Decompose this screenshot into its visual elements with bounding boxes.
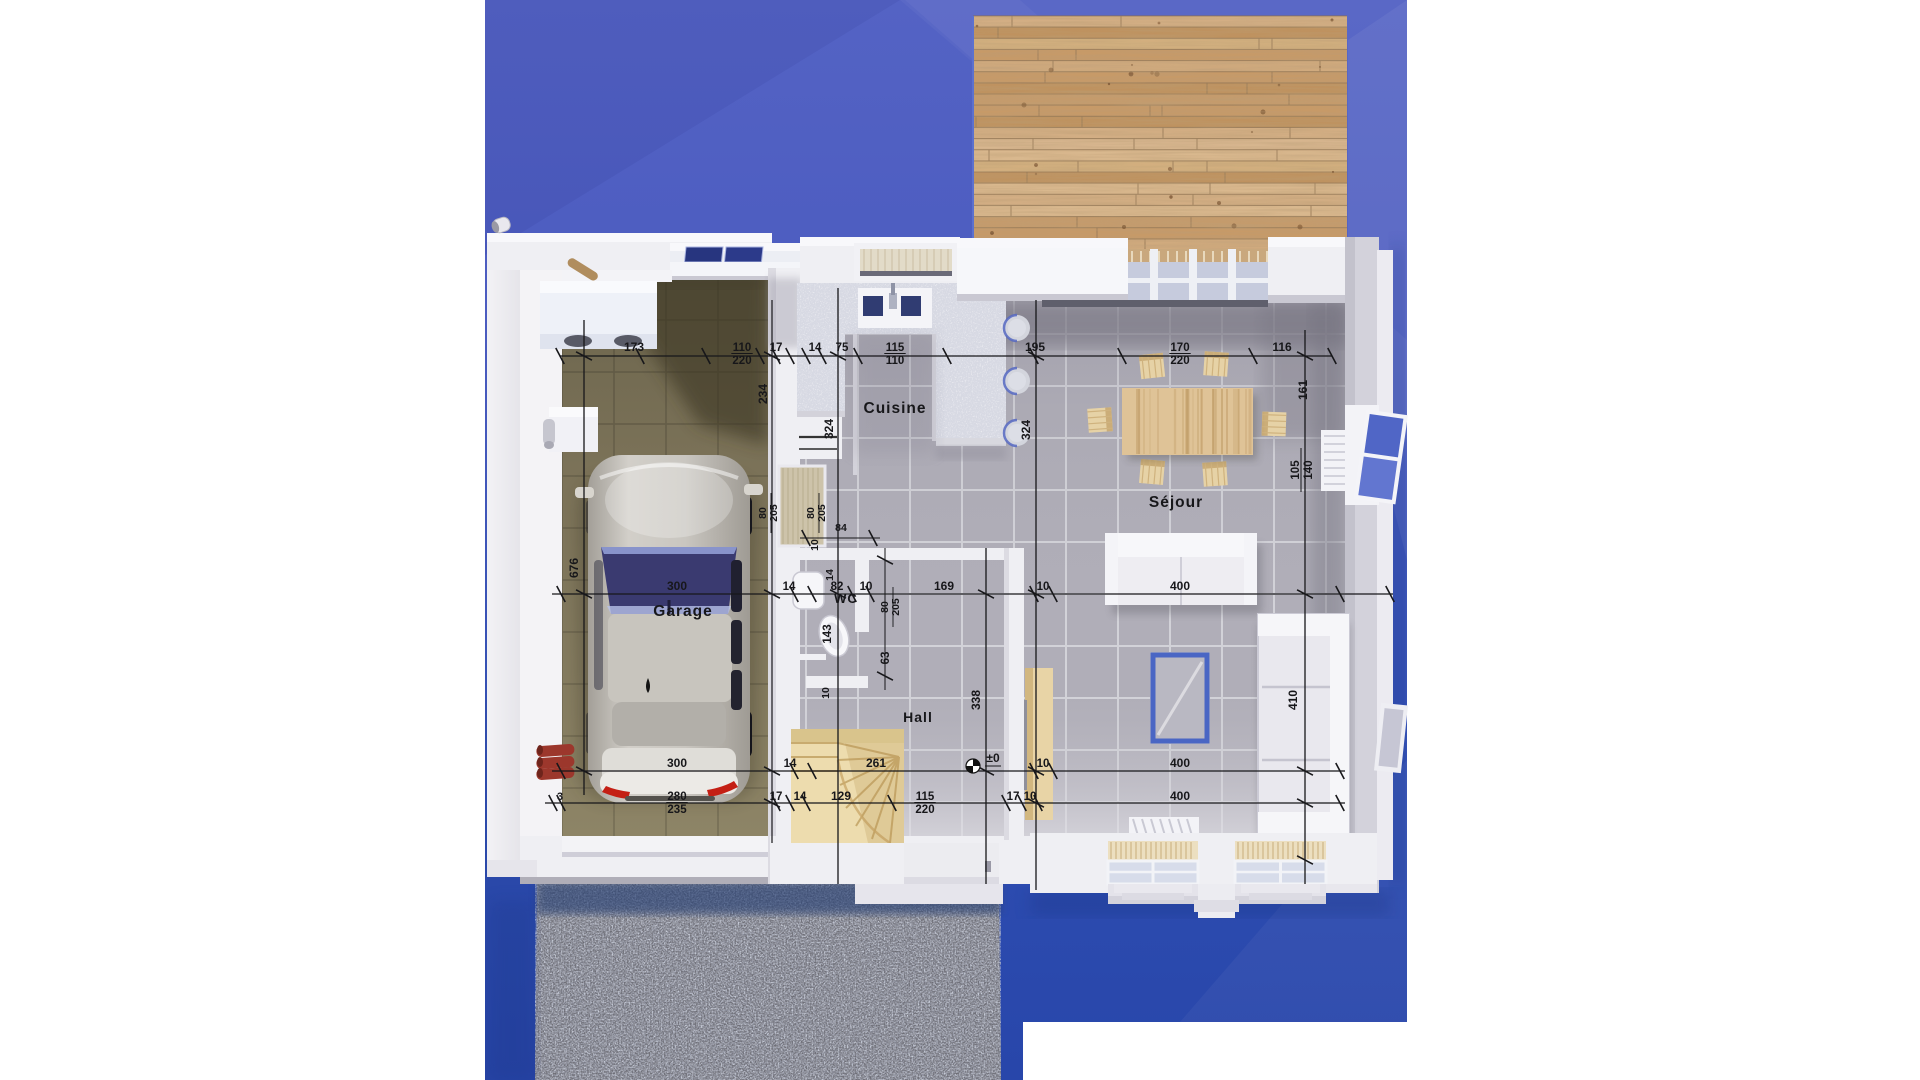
svg-text:170: 170 (1170, 342, 1189, 354)
svg-text:235: 235 (667, 804, 687, 816)
svg-text:140: 140 (1303, 460, 1315, 479)
svg-text:400: 400 (1170, 579, 1190, 593)
svg-text:161: 161 (1296, 380, 1310, 400)
svg-text:3: 3 (557, 791, 563, 803)
svg-text:261: 261 (866, 756, 886, 770)
svg-text:220: 220 (732, 355, 751, 367)
svg-text:400: 400 (1170, 789, 1190, 803)
svg-text:Séjour: Séjour (1149, 494, 1203, 511)
svg-text:220: 220 (1170, 355, 1189, 367)
svg-text:220: 220 (915, 804, 934, 816)
svg-text:63: 63 (880, 652, 892, 665)
svg-text:10: 10 (860, 581, 873, 593)
svg-text:14: 14 (783, 581, 796, 593)
svg-text:205: 205 (768, 504, 780, 522)
svg-text:169: 169 (934, 579, 954, 593)
svg-text:400: 400 (1170, 756, 1190, 770)
svg-text:10: 10 (820, 687, 832, 699)
svg-text:14: 14 (809, 342, 822, 354)
svg-text:324: 324 (1019, 420, 1033, 440)
svg-text:280: 280 (667, 791, 686, 803)
svg-text:676: 676 (567, 558, 581, 578)
svg-text:WC: WC (834, 591, 858, 606)
svg-text:84: 84 (835, 522, 847, 534)
svg-text:205: 205 (816, 504, 828, 522)
svg-text:205: 205 (890, 598, 902, 616)
svg-text:115: 115 (886, 342, 905, 354)
svg-text:129: 129 (831, 789, 851, 803)
svg-text:105: 105 (1290, 460, 1302, 480)
svg-text:300: 300 (667, 579, 687, 593)
svg-text:Garage: Garage (653, 603, 712, 620)
svg-text:110: 110 (886, 355, 905, 367)
svg-text:±0: ±0 (986, 751, 1000, 765)
svg-text:173: 173 (624, 340, 644, 354)
svg-text:14: 14 (794, 791, 807, 803)
svg-text:10: 10 (1024, 791, 1037, 803)
svg-text:10: 10 (809, 539, 821, 551)
svg-text:116: 116 (1272, 340, 1292, 354)
svg-text:14: 14 (784, 758, 797, 770)
svg-text:14: 14 (824, 569, 836, 581)
svg-text:410: 410 (1286, 690, 1300, 710)
svg-text:143: 143 (822, 624, 834, 643)
svg-text:338: 338 (969, 690, 983, 710)
svg-text:Hall: Hall (903, 709, 933, 725)
svg-text:17: 17 (1007, 791, 1020, 803)
svg-text:234: 234 (756, 384, 770, 404)
svg-text:10: 10 (1037, 581, 1050, 593)
svg-text:300: 300 (667, 756, 687, 770)
svg-text:115: 115 (916, 791, 935, 803)
svg-text:324: 324 (822, 419, 836, 439)
svg-text:110: 110 (733, 342, 752, 354)
svg-text:10: 10 (1037, 758, 1050, 770)
svg-text:Cuisine: Cuisine (864, 400, 927, 417)
